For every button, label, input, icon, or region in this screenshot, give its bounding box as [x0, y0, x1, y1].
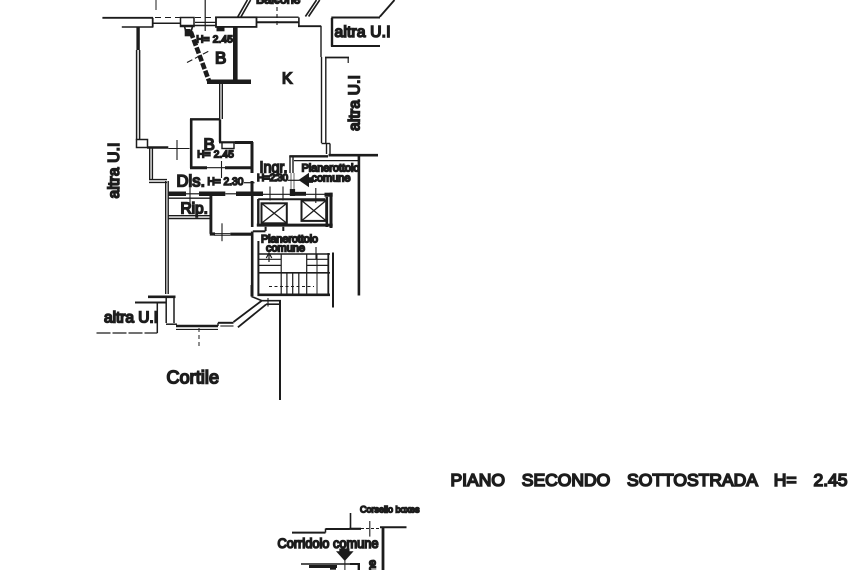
svg-text:Balcone: Balcone [256, 0, 301, 6]
svg-text:Corsello boxes: Corsello boxes [360, 505, 420, 516]
svg-text:H= 2.45: H= 2.45 [197, 150, 234, 161]
svg-text:altra U.I: altra U.I [106, 143, 123, 199]
svg-text:Dis.: Dis. [177, 172, 206, 190]
svg-text:H= 2.30: H= 2.30 [207, 176, 243, 188]
svg-text:B: B [215, 49, 226, 68]
svg-text:H=2.30: H=2.30 [257, 173, 288, 184]
svg-text:PIANO SECONDO SOTTOSTRADA H= 2: PIANO SECONDO SOTTOSTRADA H= 2.45 [451, 470, 848, 490]
svg-text:Corridoio comune: Corridoio comune [278, 536, 379, 551]
svg-text:H= 2.45: H= 2.45 [196, 35, 233, 46]
svg-text:comune: comune [266, 243, 305, 255]
svg-text:K: K [282, 71, 293, 88]
svg-text:comune: comune [312, 173, 351, 185]
svg-text:Rip.: Rip. [181, 201, 208, 218]
svg-text:comune: comune [367, 560, 379, 570]
svg-text:altra U.I: altra U.I [104, 310, 158, 327]
svg-text:altra U.I: altra U.I [347, 75, 364, 131]
svg-text:altra U.I: altra U.I [335, 24, 391, 41]
svg-text:Cortile: Cortile [167, 368, 220, 388]
